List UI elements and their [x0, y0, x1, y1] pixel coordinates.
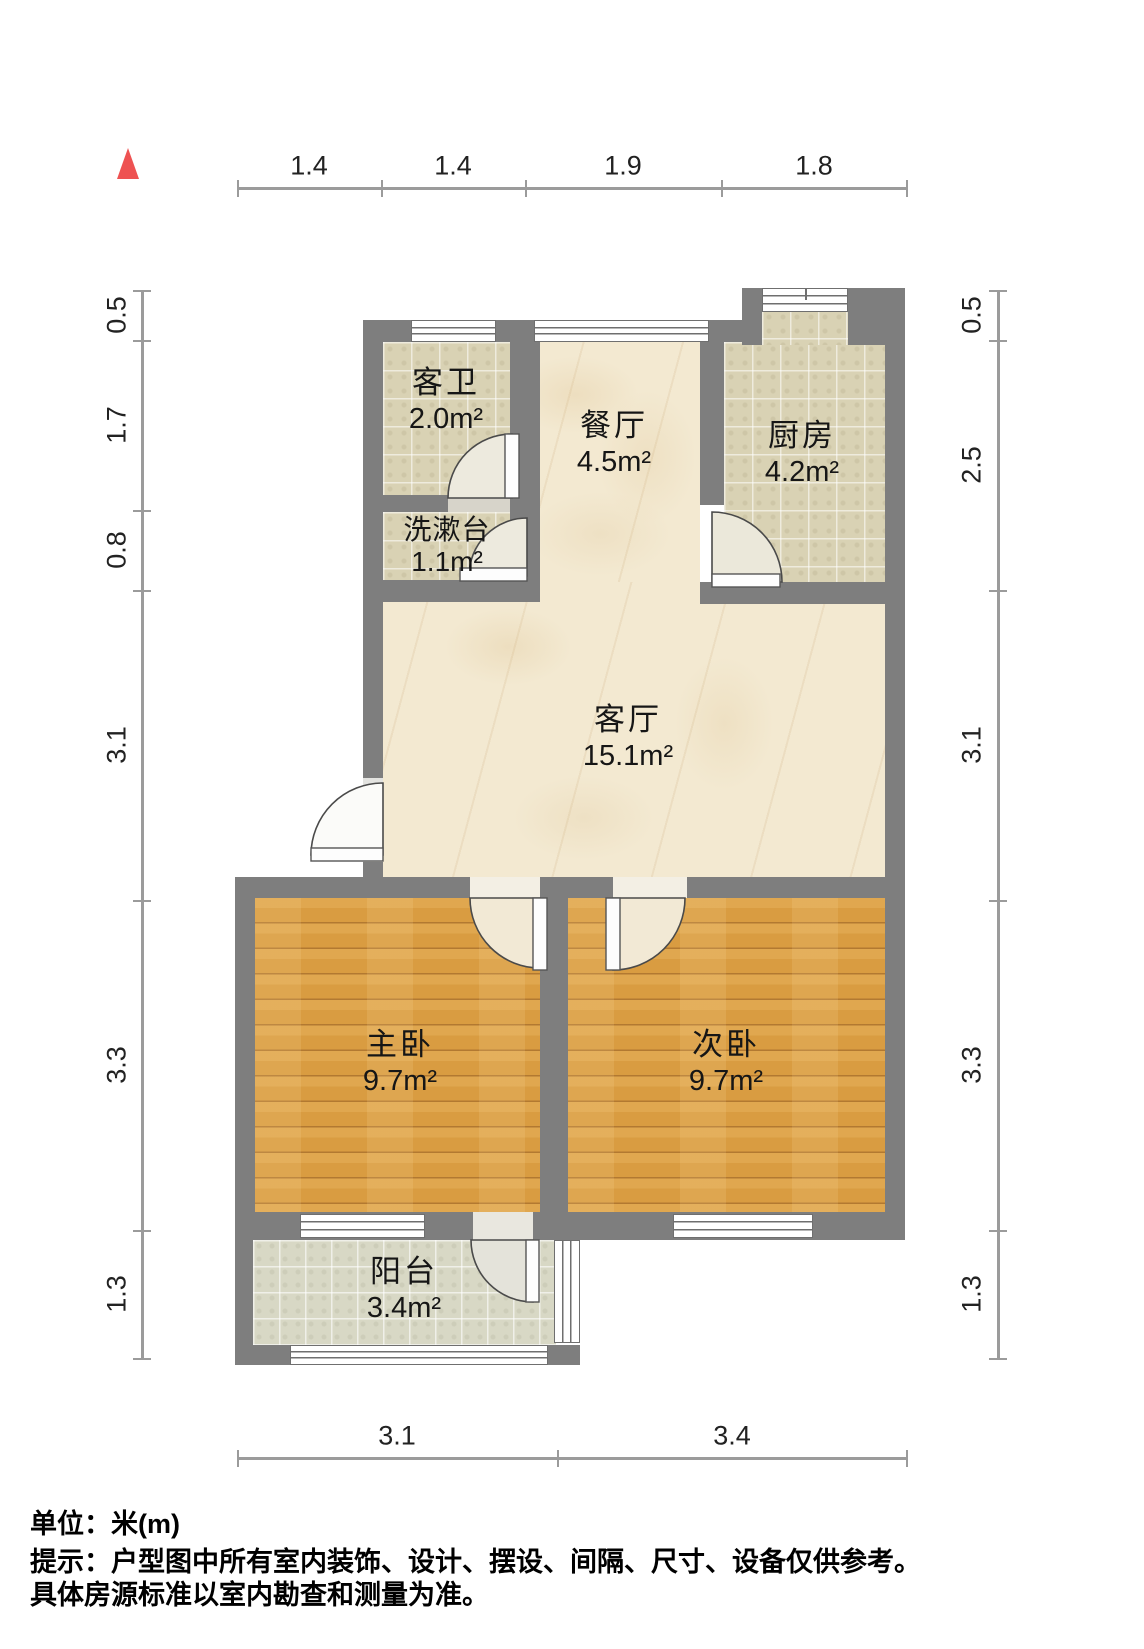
room-name: 次卧	[689, 1026, 763, 1064]
dim-tick	[525, 180, 527, 197]
dim-value-right-1: 0.5	[957, 296, 988, 334]
dim-tick	[721, 180, 723, 197]
guest-bath-door-arc	[448, 434, 512, 498]
dim-tick	[906, 1450, 908, 1467]
dim-tick	[989, 340, 1007, 342]
dim-tick	[133, 290, 151, 292]
room-area: 1.1m²	[403, 546, 490, 578]
dim-value-left-4: 3.1	[102, 726, 133, 764]
dim-tick	[133, 590, 151, 592]
room-area: 15.1m²	[583, 739, 673, 773]
dim-line-top	[237, 187, 907, 190]
dim-value-bottom-2: 3.4	[713, 1421, 751, 1452]
dim-tick	[989, 1358, 1007, 1360]
second-door-arc	[613, 898, 685, 970]
room-label-living: 客厅 15.1m²	[583, 701, 673, 773]
dim-tick	[237, 180, 239, 197]
dim-value-top-1: 1.4	[290, 151, 328, 182]
room-name: 客卫	[409, 364, 483, 402]
dim-value-right-3: 3.1	[957, 726, 988, 764]
room-label-balcony: 阳台 3.4m²	[367, 1253, 441, 1325]
entrance-door-arc	[311, 783, 383, 855]
dim-value-top-4: 1.8	[795, 151, 833, 182]
dim-line-bottom	[237, 1457, 907, 1460]
room-area: 3.4m²	[367, 1291, 441, 1325]
dim-tick	[989, 590, 1007, 592]
dim-value-right-2: 2.5	[957, 446, 988, 484]
entrance-door-leaf	[311, 848, 383, 861]
dim-tick	[237, 1450, 239, 1467]
dim-tick	[133, 340, 151, 342]
dim-value-top-3: 1.9	[604, 151, 642, 182]
master-door-leaf	[533, 898, 547, 970]
disclaimer-line-2: 具体房源标准以室内勘查和测量为准。	[30, 1573, 489, 1612]
kitchen-door-leaf	[712, 574, 780, 587]
room-label-master-bedroom: 主卧 9.7m²	[363, 1026, 437, 1098]
dim-value-left-1: 0.5	[102, 296, 133, 334]
room-area: 4.2m²	[765, 455, 839, 489]
dim-tick	[133, 510, 151, 512]
dim-line-right	[997, 290, 1000, 1360]
dim-tick	[381, 180, 383, 197]
room-name: 厨房	[765, 417, 839, 455]
room-area: 9.7m²	[363, 1064, 437, 1098]
room-name: 洗漱台	[403, 513, 490, 546]
room-name: 餐厅	[577, 407, 651, 445]
north-arrow-icon	[117, 148, 139, 179]
dim-line-left	[141, 290, 144, 1360]
door-layer	[0, 0, 1144, 1649]
room-name: 阳台	[367, 1253, 441, 1291]
dim-tick	[133, 900, 151, 902]
room-name: 主卧	[363, 1026, 437, 1064]
room-label-kitchen: 厨房 4.2m²	[765, 417, 839, 489]
dim-tick	[133, 1230, 151, 1232]
dim-value-bottom-1: 3.1	[378, 1421, 416, 1452]
room-label-dining: 餐厅 4.5m²	[577, 407, 651, 479]
dim-value-top-2: 1.4	[434, 151, 472, 182]
room-label-washstand: 洗漱台 1.1m²	[403, 513, 490, 578]
dim-value-right-5: 1.3	[957, 1275, 988, 1313]
unit-label: 单位：米(m)	[30, 1502, 180, 1541]
floorplan-page: { "rooms": { "guest_bath": {"name":"客卫",…	[0, 0, 1144, 1649]
dim-tick	[906, 180, 908, 197]
second-door-leaf	[606, 898, 620, 970]
dim-tick	[557, 1450, 559, 1467]
dim-tick	[989, 900, 1007, 902]
master-door-arc	[470, 898, 540, 968]
guest-bath-door-leaf	[505, 434, 519, 498]
room-area: 4.5m²	[577, 445, 651, 479]
dim-value-left-5: 3.3	[102, 1046, 133, 1084]
room-area: 2.0m²	[409, 402, 483, 436]
room-area: 9.7m²	[689, 1064, 763, 1098]
dim-value-left-6: 1.3	[102, 1275, 133, 1313]
dim-value-left-3: 0.8	[102, 531, 133, 569]
dim-tick	[133, 1358, 151, 1360]
balcony-door-arc	[471, 1240, 533, 1302]
kitchen-door-arc	[712, 512, 782, 582]
dim-value-left-2: 1.7	[102, 406, 133, 444]
room-label-guest-bath: 客卫 2.0m²	[409, 364, 483, 436]
dim-value-right-4: 3.3	[957, 1046, 988, 1084]
balcony-door-leaf	[526, 1240, 539, 1302]
room-name: 客厅	[583, 701, 673, 739]
dim-tick	[989, 1230, 1007, 1232]
room-label-second-bedroom: 次卧 9.7m²	[689, 1026, 763, 1098]
dim-tick	[989, 290, 1007, 292]
